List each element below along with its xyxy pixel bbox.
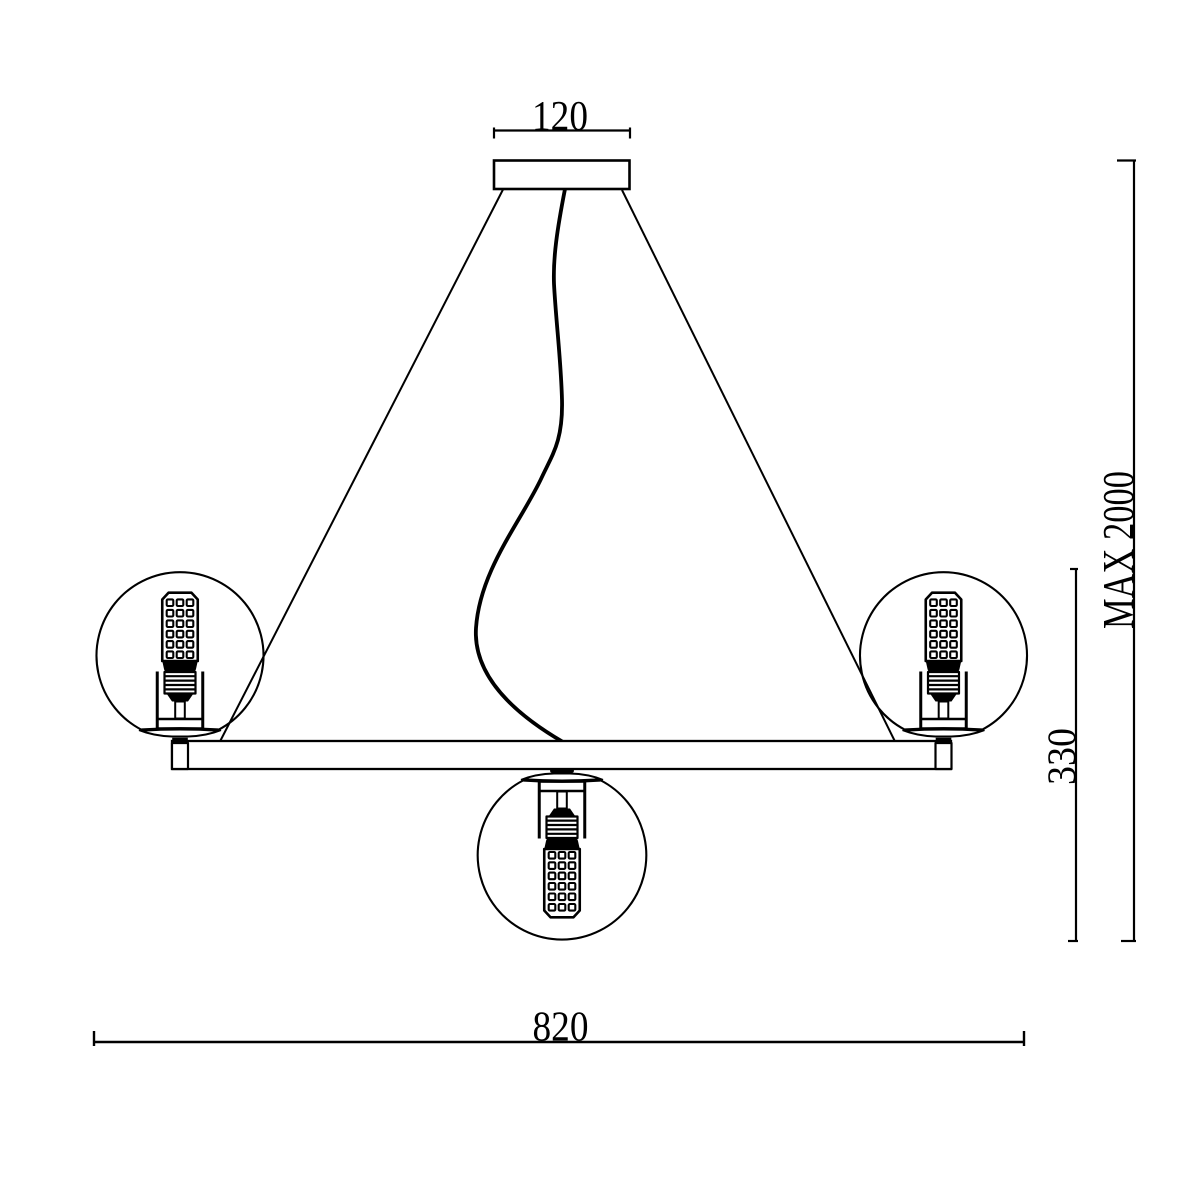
svg-text:MAX 2000: MAX 2000: [1094, 471, 1143, 629]
svg-text:120: 120: [532, 94, 588, 140]
svg-text:330: 330: [1039, 728, 1084, 785]
svg-text:820: 820: [533, 1005, 589, 1051]
